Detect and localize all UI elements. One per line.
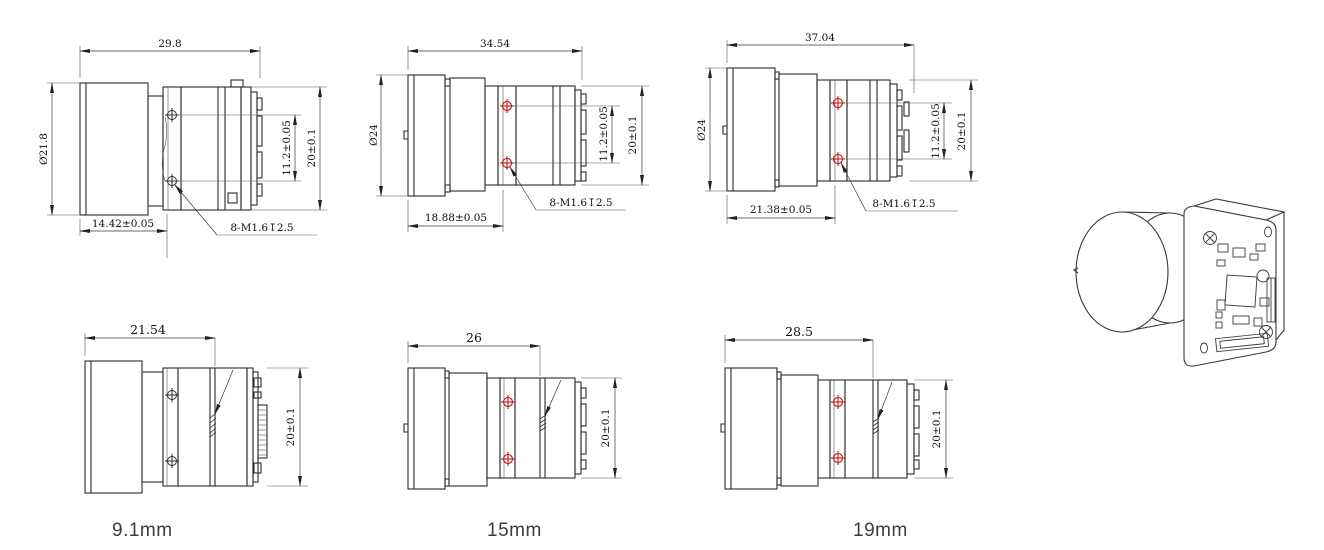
- sensor-hatch-mark: [540, 380, 561, 431]
- dim-body-height: 20±0.1: [581, 86, 649, 185]
- camera-body: [830, 380, 907, 478]
- mount-screw-hole-red: [831, 395, 845, 409]
- camera-body: [830, 80, 890, 181]
- dim-top-width: 37.04: [727, 32, 914, 93]
- drawing-top-middle-15mm: 34.54 Ø24 18.88±0.05 11.2±0.05 20±0.1 8-…: [368, 20, 673, 265]
- dim-flange-length: 14.42±0.05: [80, 214, 167, 258]
- camera-body: [500, 378, 575, 478]
- dim-body-height-label: 20±0.1: [956, 112, 968, 151]
- drawing-top-left-9_1mm: 29.8 Ø21.8 14.42±0.05 11.2±0.05 20±0.1 8…: [35, 20, 365, 265]
- drawing-bottom-right-19mm: 28.5 20±0.1: [700, 308, 995, 515]
- drawing-top-middle-svg: 34.54 Ø24 18.88±0.05 11.2±0.05 20±0.1 8-…: [368, 20, 673, 265]
- thread-note-label: 8-M1.6↧2.5: [230, 222, 293, 234]
- drawing-bottom-middle-svg: 26 20±0.1: [390, 308, 675, 515]
- dim-flange-length-label: 18.88±0.05: [425, 212, 487, 224]
- lens-barrel: [80, 83, 163, 215]
- mount-screw-hole-red: [831, 451, 845, 465]
- thread-callout: 8-M1.6↧2.5: [841, 163, 958, 211]
- drawing-top-right-svg: 37.04 Ø24 21.38±0.05 11.2±0.05 20±0.1 8-…: [680, 18, 995, 263]
- dim-top-width: 21.54: [85, 322, 215, 366]
- thread-note-label: 8-M1.6↧2.5: [872, 198, 935, 210]
- pcb-stack: [575, 90, 586, 181]
- mount-screw-hole-red: [501, 452, 515, 466]
- dim-body-height-label: 20±0.1: [285, 408, 297, 447]
- dim-top-width: 26: [408, 330, 540, 376]
- drawing-top-right-19mm: 37.04 Ø24 21.38±0.05 11.2±0.05 20±0.1 8-…: [680, 18, 995, 263]
- drawing-bottom-right-svg: 28.5 20±0.1: [700, 308, 995, 515]
- focal-length-label-9_1mm: 9.1mm: [112, 520, 173, 542]
- dim-body-height: 20±0.1: [581, 378, 622, 478]
- dim-lens-diameter-label: Ø24: [368, 124, 380, 146]
- dim-body-height-label: 20±0.1: [931, 410, 943, 449]
- sensor-hatch-mark: [873, 382, 892, 434]
- drawing-sheet: 29.8 Ø21.8 14.42±0.05 11.2±0.05 20±0.1 8…: [0, 0, 1324, 550]
- drawing-bottom-left-svg: 21.54 20±0.1: [60, 308, 345, 515]
- dim-hole-spacing: 11.2±0.05: [507, 106, 620, 163]
- pcb-stack: [907, 384, 919, 474]
- lens-barrel: [404, 368, 500, 489]
- dim-lens-diameter-label: Ø21.8: [38, 133, 50, 165]
- camera-body: [163, 368, 247, 486]
- dim-body-height-label: 20±0.1: [627, 116, 639, 155]
- dim-hole-spacing-label: 11.2±0.05: [598, 106, 610, 162]
- pcb-stack: [890, 84, 909, 177]
- lens-notch: [404, 424, 408, 432]
- drawing-bottom-left-9_1mm: 21.54 20±0.1: [60, 308, 345, 515]
- thread-note-label: 8-M1.6↧2.5: [549, 197, 612, 209]
- lens-notch: [721, 424, 725, 432]
- dim-hole-spacing-label: 11.2±0.05: [281, 120, 293, 176]
- dim-top-width: 29.8: [80, 38, 260, 78]
- dim-top-width-label: 28.5: [785, 324, 813, 339]
- dim-lens-diameter: Ø24: [368, 75, 408, 196]
- dim-flange-length-label: 14.42±0.05: [92, 218, 154, 230]
- pcb-stack: [251, 92, 262, 205]
- lens-barrel: [723, 68, 830, 191]
- focal-length-label-19mm: 19mm: [853, 520, 908, 542]
- lens-notch: [723, 126, 727, 134]
- camera-3d-render: [1070, 180, 1292, 372]
- lens-barrel: [721, 368, 830, 489]
- dim-top-width-label: 37.04: [805, 32, 835, 44]
- lens-notch: [404, 131, 408, 139]
- drawing-bottom-middle-15mm: 26 20±0.1: [390, 308, 675, 515]
- pcb-stack: [575, 382, 586, 474]
- dim-hole-spacing: 11.2±0.05: [172, 115, 301, 181]
- dim-hole-spacing: 11.2±0.05: [838, 103, 952, 159]
- sensor-hatch-mark: [210, 370, 233, 437]
- dim-top-width-label: 34.54: [480, 38, 510, 50]
- dim-body-height: 20±0.1: [914, 380, 953, 478]
- camera-3d-render-svg: [1070, 180, 1292, 372]
- dim-top-width-label: 29.8: [158, 38, 181, 50]
- focal-length-label-15mm: 15mm: [487, 520, 542, 542]
- dim-top-width-label: 21.54: [130, 322, 166, 337]
- dim-body-height: 20±0.1: [909, 80, 978, 181]
- dim-flange-length-label: 21.38±0.05: [750, 204, 812, 216]
- dim-hole-spacing-label: 11.2±0.05: [930, 103, 942, 159]
- dim-body-height-label: 20±0.1: [600, 409, 612, 448]
- camera-body: [162, 80, 251, 210]
- drawing-top-left-svg: 29.8 Ø21.8 14.42±0.05 11.2±0.05 20±0.1 8…: [35, 20, 365, 265]
- dim-lens-diameter: Ø24: [696, 68, 727, 191]
- mount-screw-hole-red: [501, 395, 515, 409]
- board-connector: [247, 368, 267, 486]
- dim-body-height-label: 20±0.1: [306, 129, 318, 168]
- dim-lens-diameter: Ø21.8: [38, 83, 80, 215]
- dim-top-width: 34.54: [408, 38, 582, 80]
- pcb-face: [1184, 206, 1276, 366]
- lens-front-face: [1076, 212, 1168, 332]
- lens-barrel: [85, 361, 163, 493]
- dim-lens-diameter-label: Ø24: [696, 119, 708, 141]
- dim-top-width: 28.5: [725, 324, 873, 378]
- dim-body-height: 20±0.1: [267, 368, 308, 486]
- camera-body: [498, 86, 575, 185]
- dim-top-width-label: 26: [466, 330, 482, 345]
- thread-callout: 8-M1.6↧2.5: [510, 167, 626, 210]
- lens-barrel: [404, 75, 498, 196]
